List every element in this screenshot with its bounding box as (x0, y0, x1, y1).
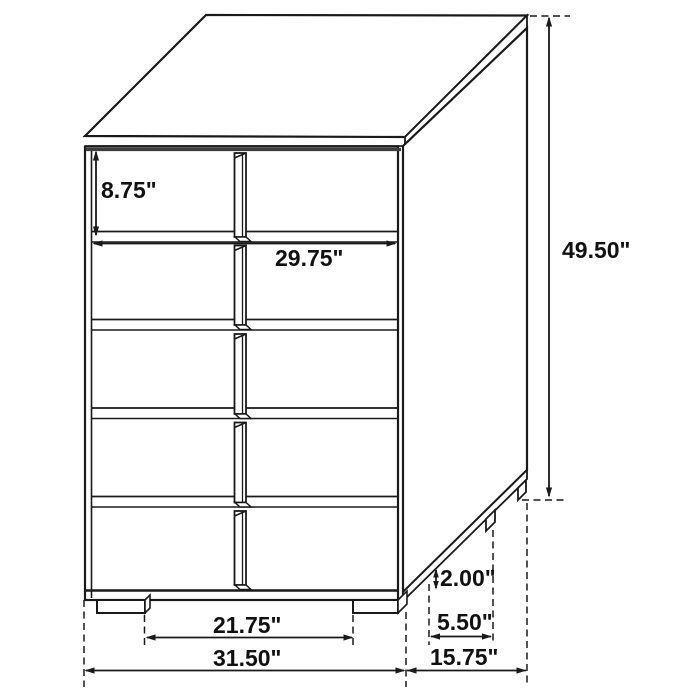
dimension-label-overall-height: 49.50" (562, 237, 630, 263)
dimension-front-foot-spacing: 21.75" (146, 612, 354, 641)
front-left-foot (97, 600, 145, 613)
dimension-overall-width: 31.50" (85, 645, 406, 674)
dimension-label-side-foot-spacing: 5.50" (437, 609, 493, 635)
dimension-label-drawer-height: 8.75" (101, 177, 157, 203)
dimension-overall-depth: 15.75" (407, 644, 527, 674)
dimension-label-drawer-width: 29.75" (275, 245, 343, 271)
front-right-foot (353, 600, 398, 613)
diagram-canvas: 8.75" 29.75" 49.50" 2.00" 5. (0, 0, 700, 700)
chest-outline (85, 15, 527, 613)
dimension-label-overall-width: 31.50" (213, 645, 281, 671)
dimension-side-foot-spacing: 5.50" (430, 609, 493, 640)
dimension-label-front-foot-spacing: 21.75" (213, 612, 281, 638)
dimension-foot-height: 2.00" (433, 565, 495, 591)
dimension-label-foot-height: 2.00" (440, 565, 496, 591)
dimension-overall-height: 49.50" (546, 17, 631, 498)
chest-dimension-diagram: 8.75" 29.75" 49.50" 2.00" 5. (0, 0, 700, 700)
dimension-label-overall-depth: 15.75" (430, 644, 498, 670)
